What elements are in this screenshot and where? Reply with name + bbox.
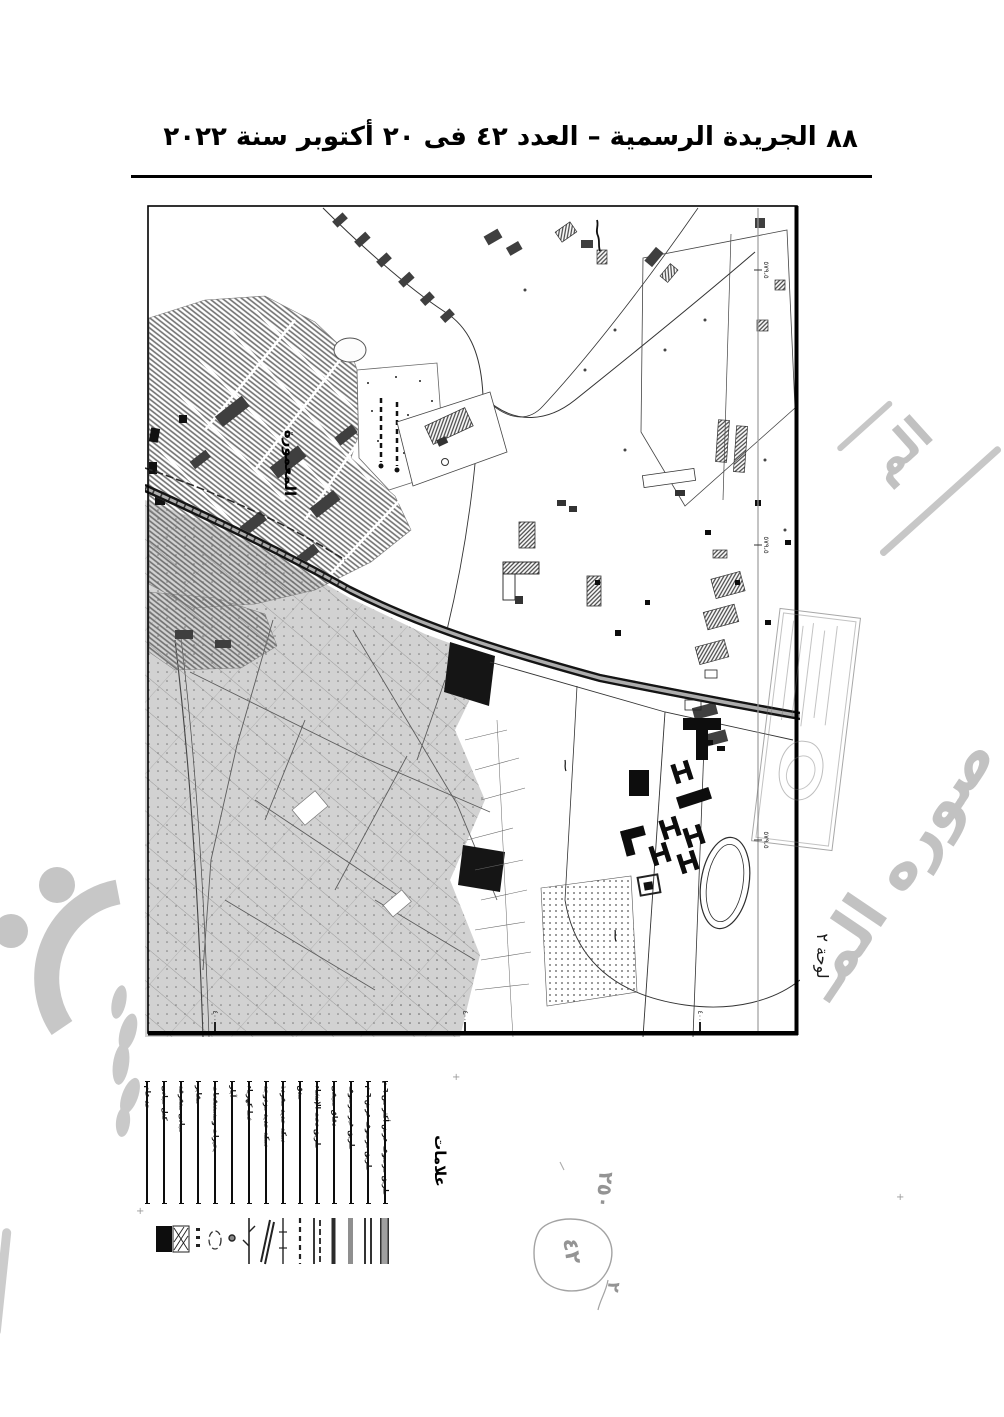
grid-coordinate-label: ٥٧٩،٥ — [760, 490, 772, 600]
map-bottom-tick-label: ٤٠٠ — [209, 976, 221, 1056]
sheet-number-note: لوحة ٢ — [814, 901, 830, 1011]
grid-coordinate-label: ٥٧٩،٥ — [760, 215, 772, 325]
gazette-page: { "page": { "header": "الجريدة الرسمية –… — [0, 0, 1004, 1417]
grid-coordinate-label: ٥٧٩،٥ — [760, 785, 772, 895]
stipple-patch — [383, 940, 455, 1037]
map-bottom-tick-label: ٤٠٠ — [459, 976, 471, 1056]
watermark-arc — [47, 892, 118, 1028]
watermark-wheat-leaf — [109, 984, 144, 1138]
watermark-dot-2 — [0, 914, 28, 948]
survey-map — [145, 200, 800, 1037]
orchard-patch — [541, 876, 637, 1006]
map-bottom-tick-label: ٤٠٠ — [694, 976, 706, 1056]
watermark-dot-1 — [39, 867, 75, 903]
map-figure — [145, 200, 800, 1037]
district-label: المعمورة — [283, 398, 297, 528]
pond — [334, 338, 366, 362]
